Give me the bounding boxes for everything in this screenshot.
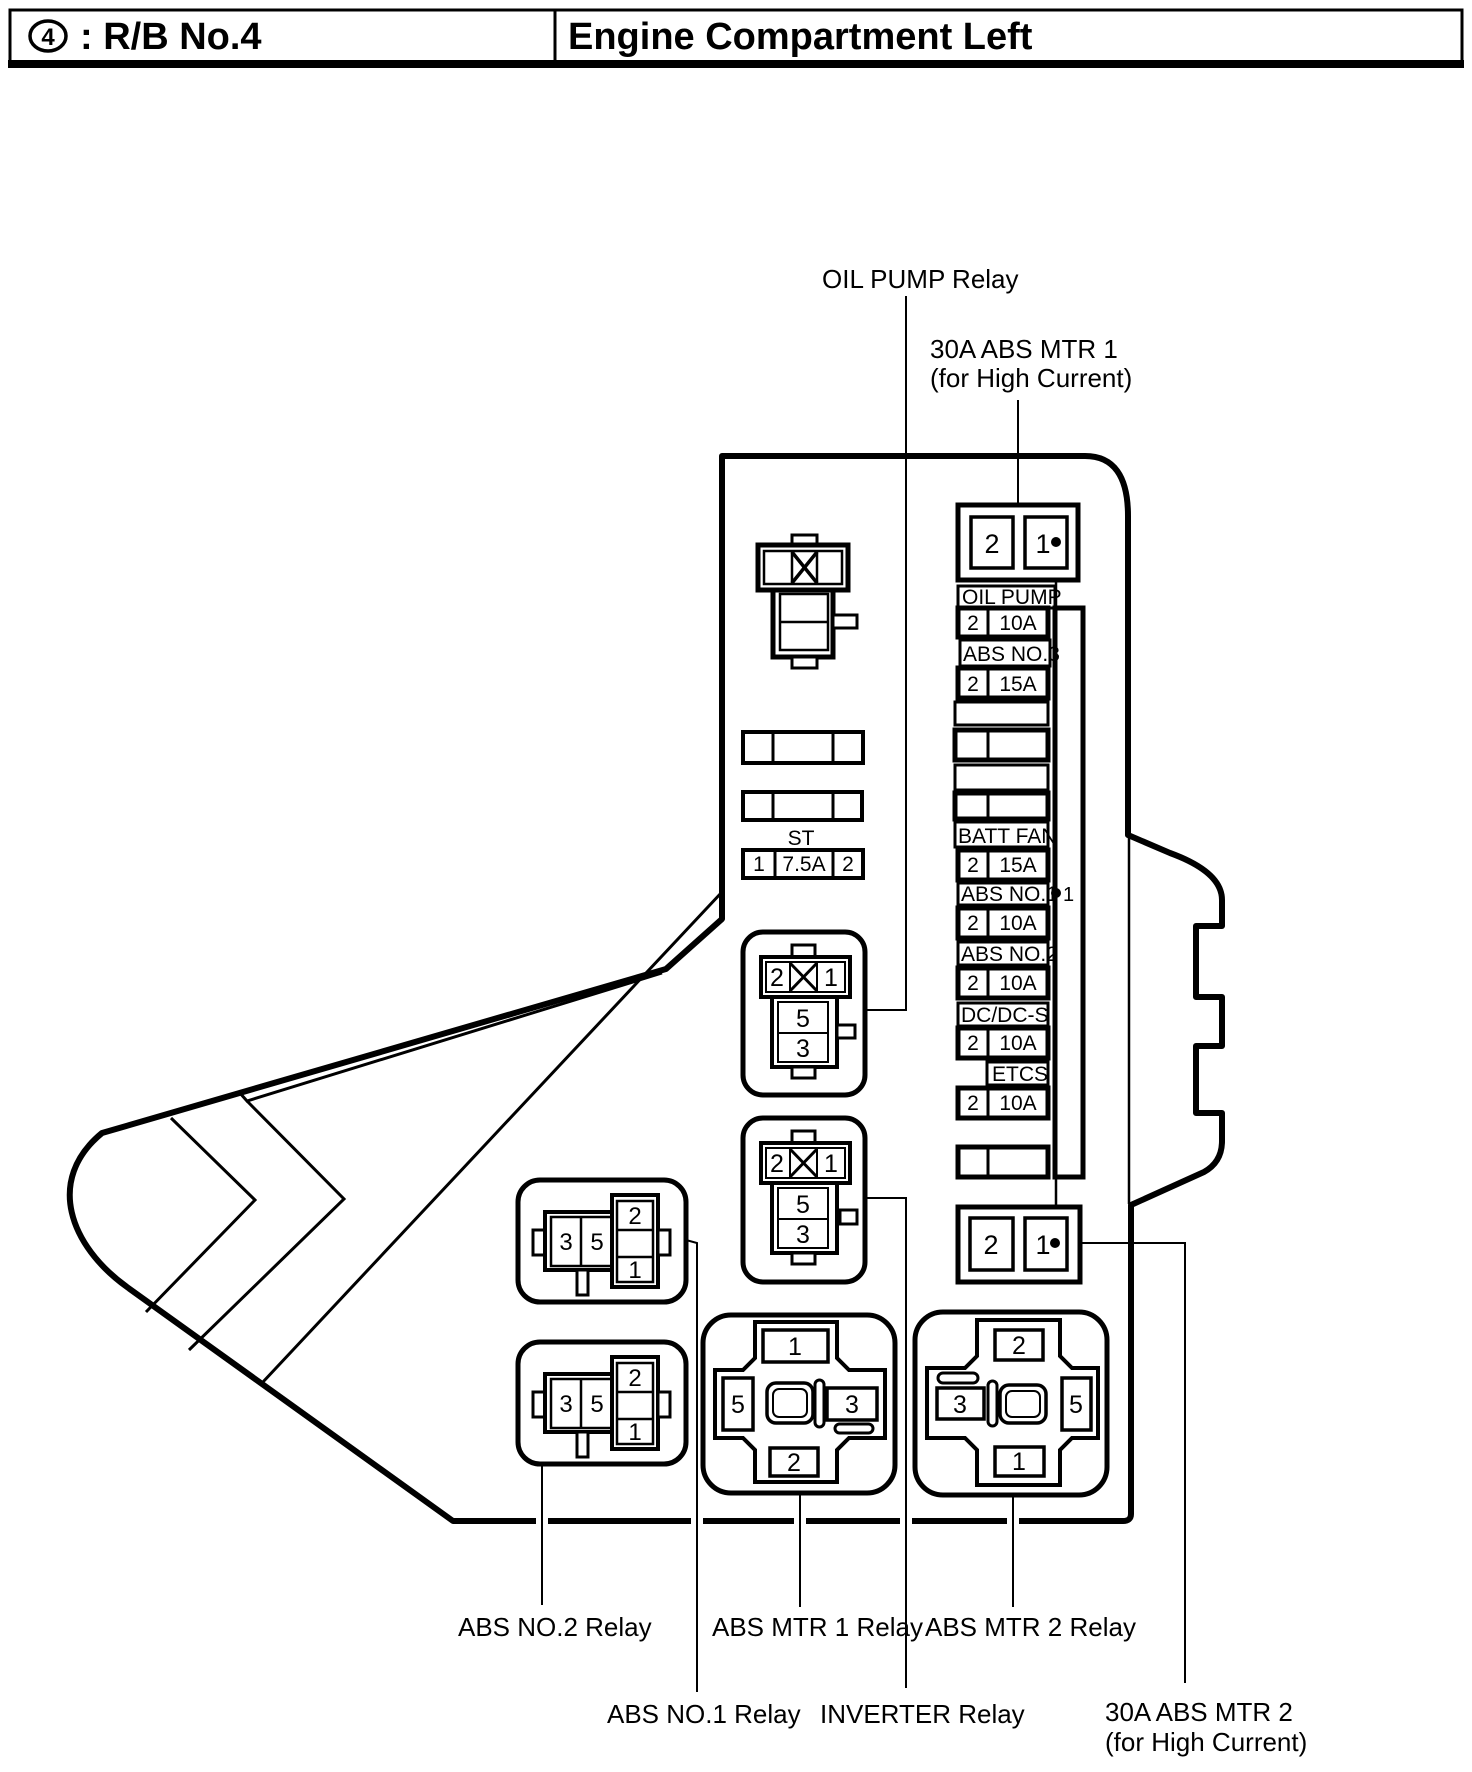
header-badge-number: 4	[41, 24, 55, 51]
pin-label: 1	[628, 1257, 641, 1284]
pin-label: 2	[770, 964, 784, 992]
fuse-box-diagram-page: 4 : R/B No.4 Engine Compartment Left	[0, 0, 1472, 1772]
pin-label: 2	[628, 1203, 641, 1230]
fuse-label-box-empty	[955, 765, 1048, 790]
pin-label: 5	[796, 1005, 810, 1033]
oil-pump-relay-callout: OIL PUMP Relay	[822, 264, 1019, 294]
pin-label: 2	[1012, 1332, 1026, 1360]
st-pin-left: 1	[753, 853, 765, 876]
st-fuse-label: ST	[788, 827, 815, 850]
high-current-node-dot	[1051, 888, 1061, 898]
pin-label: 1	[788, 1333, 802, 1361]
abs-no2-relay-callout: ABS NO.2 Relay	[458, 1612, 652, 1642]
pin-label: 3	[953, 1391, 967, 1419]
header-bottom-rule	[8, 60, 1464, 68]
abs-mtr1-high-current-connector: 2 1	[958, 505, 1078, 580]
fuse-label: ABS NO.1	[961, 883, 1058, 906]
pin-label: 1	[824, 1150, 838, 1178]
fuse-pin: 2	[967, 912, 979, 935]
pin-label: 2	[983, 1230, 998, 1260]
header: 4 : R/B No.4 Engine Compartment Left	[8, 10, 1464, 68]
pin-label: 1	[628, 1419, 641, 1446]
fuse-pin: 2	[967, 1092, 979, 1115]
fuse-pin: 2	[967, 1032, 979, 1055]
fuse-label: OIL PUMP	[962, 586, 1062, 609]
st-amp: 7.5A	[782, 853, 825, 876]
fuse-amp: 10A	[999, 612, 1036, 635]
fuse-amp: 10A	[999, 1032, 1036, 1055]
fuse-pin: 2	[967, 673, 979, 696]
relay-block-diagram: 4 : R/B No.4 Engine Compartment Left	[0, 0, 1472, 1772]
pin-label: 2	[628, 1365, 641, 1392]
node-marker-label: 1	[1063, 884, 1074, 906]
abs-mtr1-relay-callout: ABS MTR 1 Relay	[712, 1612, 923, 1642]
pin-label: 3	[845, 1391, 859, 1419]
fuse-pin: 2	[967, 972, 979, 995]
fuse-pin: 2	[967, 854, 979, 877]
abs-mtr2-fuse-callout-line2: (for High Current)	[1105, 1727, 1307, 1757]
fuse-amp: 10A	[999, 912, 1036, 935]
pin-label: 3	[559, 1391, 572, 1418]
fuse-pin: 2	[967, 612, 979, 635]
pin-label: 2	[984, 529, 999, 559]
fuse-amp: 15A	[999, 854, 1036, 877]
fuse-amp: 10A	[999, 1092, 1036, 1115]
terminal-node-dot	[1050, 1238, 1060, 1248]
fuse-label: BATT FAN	[958, 825, 1056, 848]
fuse-amp: 10A	[999, 972, 1036, 995]
top-callouts: OIL PUMP Relay 30A ABS MTR 1 (for High C…	[822, 264, 1132, 393]
abs-mtr2-relay-callout: ABS MTR 2 Relay	[925, 1612, 1136, 1642]
terminal-node-dot	[1051, 537, 1061, 547]
pin-label: 1	[824, 964, 838, 992]
pin-label: 1	[1035, 529, 1050, 559]
pin-label: 2	[787, 1449, 801, 1477]
pin-label: 3	[796, 1035, 810, 1063]
fuse-box-empty	[743, 792, 862, 820]
pin-label: 3	[796, 1221, 810, 1249]
fuse-label: ABS NO.2	[961, 943, 1058, 966]
abs-mtr2-fuse-callout-line1: 30A ABS MTR 2	[1105, 1697, 1293, 1727]
bottom-callouts: ABS NO.2 Relay ABS MTR 1 Relay ABS MTR 2…	[458, 1612, 1307, 1757]
abs-no1-relay-callout: ABS NO.1 Relay	[607, 1699, 801, 1729]
fuse-box-empty	[743, 732, 863, 763]
pin-label: 5	[1069, 1391, 1083, 1419]
header-right-title: Engine Compartment Left	[568, 16, 1033, 58]
fuse-label: ABS NO.3	[963, 643, 1060, 666]
abs-mtr1-fuse-callout-line1: 30A ABS MTR 1	[930, 334, 1118, 364]
fuse-box-empty	[955, 730, 1048, 760]
pin-label: 2	[770, 1150, 784, 1178]
abs-mtr2-high-current-connector: 2 1	[958, 1207, 1080, 1282]
st-pin-right: 2	[842, 853, 854, 876]
abs-mtr1-fuse-callout-line2: (for High Current)	[930, 363, 1132, 393]
fuse-box-empty	[958, 1147, 1048, 1177]
pin-label: 5	[590, 1391, 603, 1418]
pin-label: 5	[796, 1191, 810, 1219]
header-left-title: : R/B No.4	[80, 16, 262, 58]
inverter-relay-callout: INVERTER Relay	[820, 1699, 1025, 1729]
fuse-amp: 15A	[999, 673, 1036, 696]
pin-label: 5	[590, 1229, 603, 1256]
fuse-box-empty	[955, 793, 1048, 819]
fuse-label-box-empty	[955, 702, 1048, 725]
fuse-label: ETCS	[992, 1063, 1048, 1086]
pin-label: 5	[731, 1391, 745, 1419]
pin-label: 3	[559, 1229, 572, 1256]
pin-label: 1	[1035, 1230, 1050, 1260]
fuse-label: DC/DC-S	[961, 1004, 1049, 1027]
pin-label: 1	[1012, 1448, 1026, 1476]
